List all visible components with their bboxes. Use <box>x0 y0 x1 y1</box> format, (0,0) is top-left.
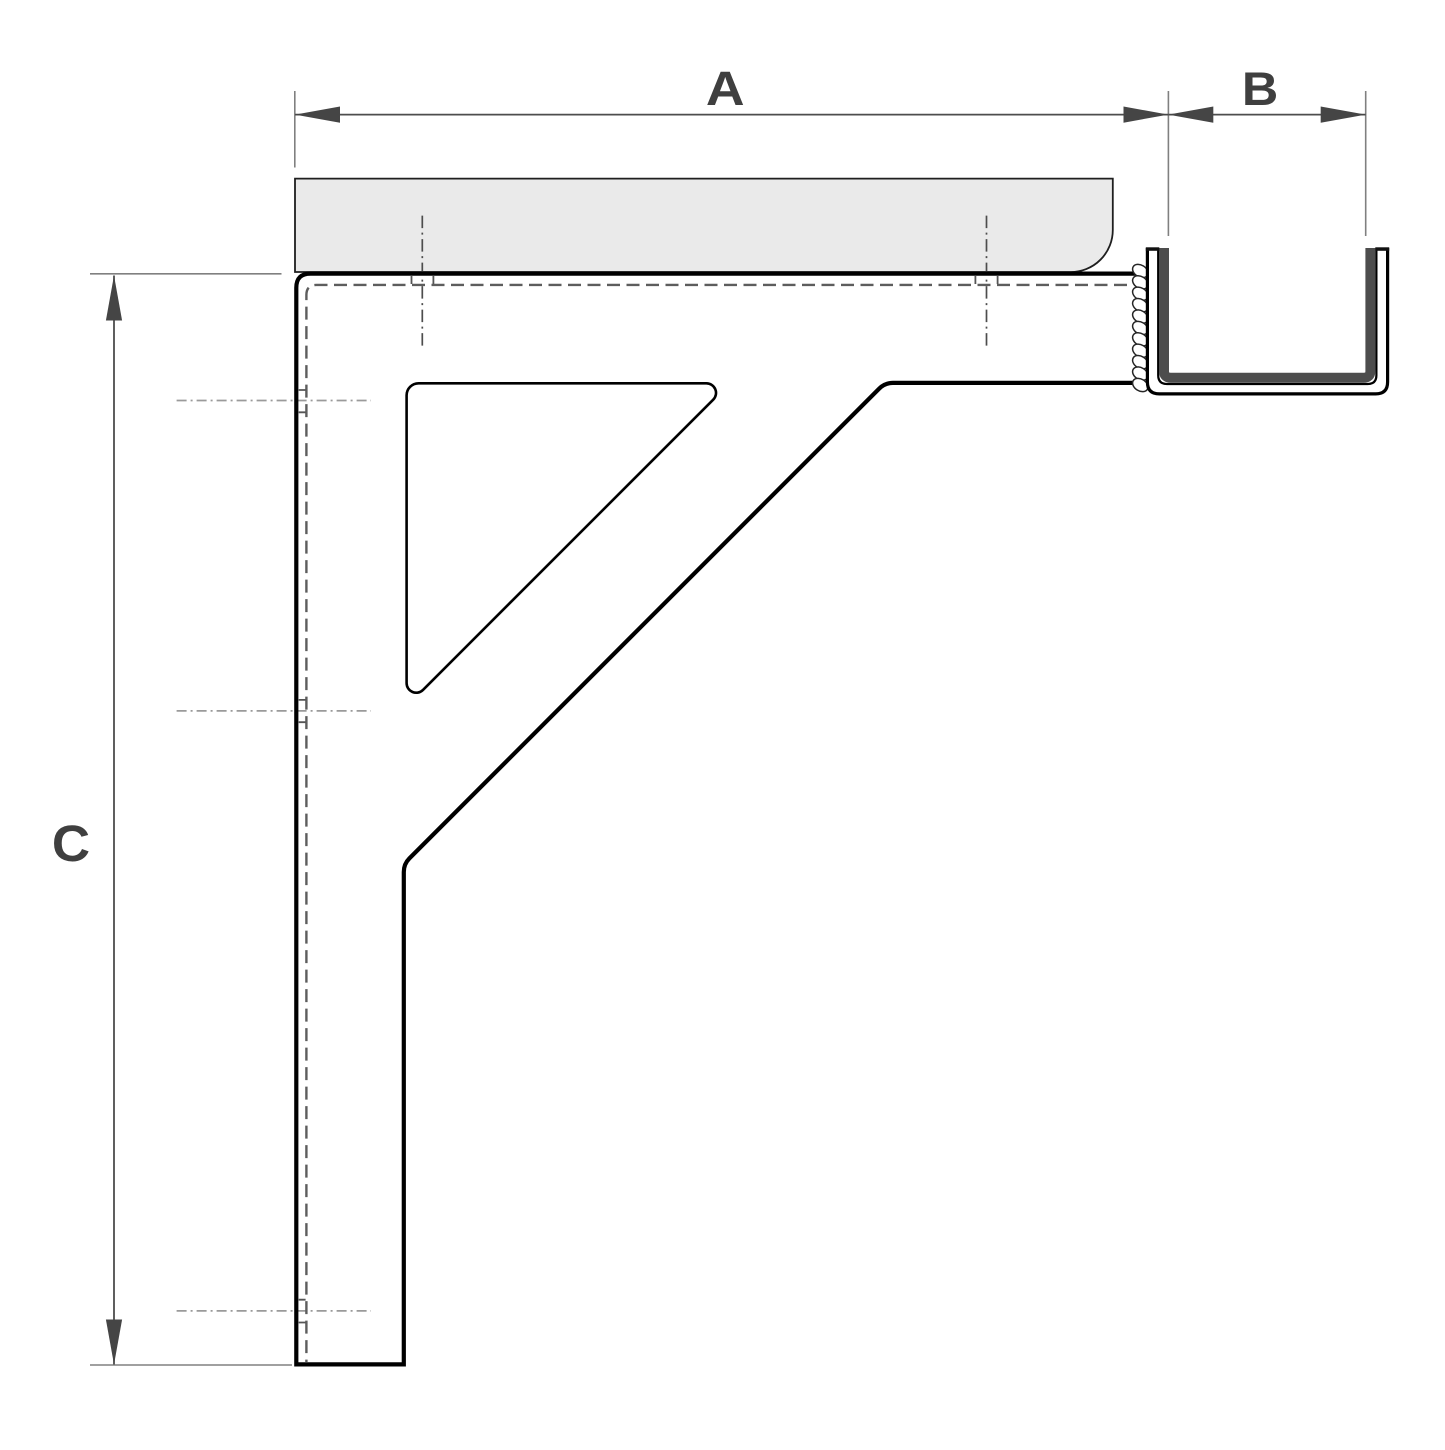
svg-text:B: B <box>1242 63 1278 115</box>
svg-text:A: A <box>706 63 745 116</box>
svg-text:C: C <box>52 815 90 872</box>
